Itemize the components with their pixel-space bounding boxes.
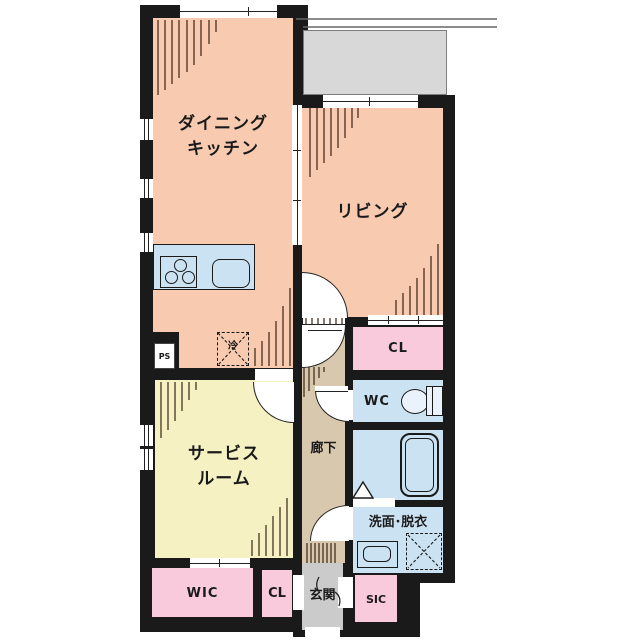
stove-icon <box>160 256 197 288</box>
sliding-door-closet-top <box>368 315 443 325</box>
toilet-tank-icon <box>426 386 443 416</box>
sliding-door-dk-living <box>292 105 302 245</box>
label-dining-kitchen-line1: ダイニング <box>153 112 293 137</box>
threshold-living-hall <box>303 317 345 325</box>
label-hallway: 廊下 <box>300 440 347 459</box>
room-dining-kitchen <box>153 18 293 368</box>
window-left-3 <box>140 233 153 252</box>
window-living-balcony <box>323 95 418 108</box>
sliding-door-wic <box>190 558 250 568</box>
label-closet-top: CL <box>353 340 443 359</box>
floor-plan: 冷 PS <box>0 0 640 640</box>
label-service-room: サービス ルーム <box>155 442 293 491</box>
balcony <box>303 30 447 95</box>
toilet-icon <box>401 389 429 414</box>
label-shoe-closet: SIC <box>355 592 397 608</box>
label-toilet: WC <box>353 393 401 412</box>
door-leaf-toilet <box>315 386 348 392</box>
label-living: リビング <box>302 200 443 225</box>
label-entrance: 玄関 <box>300 587 345 606</box>
window-kitchen-top <box>180 5 277 18</box>
label-washroom: 洗面･脱衣 <box>353 514 443 533</box>
window-left-1 <box>140 119 153 140</box>
doorway-bathroom <box>353 498 395 507</box>
label-service-line1: サービス <box>155 442 293 467</box>
entrance-front-door-opening <box>305 627 340 640</box>
label-closet-bottom: CL <box>260 585 294 604</box>
doorway-service <box>255 369 293 381</box>
label-dining-kitchen-line2: キッチン <box>153 137 293 162</box>
washroom-sink-icon <box>357 541 398 568</box>
pipe-space-label: PS <box>154 351 175 363</box>
window-left-2 <box>140 179 153 198</box>
washing-machine-icon <box>406 533 442 570</box>
bathtub-icon <box>400 433 439 497</box>
label-dining-kitchen: ダイニング キッチン <box>153 112 293 161</box>
window-service-1 <box>140 425 153 446</box>
kitchen-sink-icon <box>212 259 250 288</box>
label-service-line2: ルーム <box>155 467 293 492</box>
label-wic: WIC <box>152 585 253 604</box>
door-leaf-hall-dk <box>308 325 342 331</box>
window-service-2 <box>140 449 153 470</box>
refrigerator-label: 冷 <box>224 340 242 355</box>
